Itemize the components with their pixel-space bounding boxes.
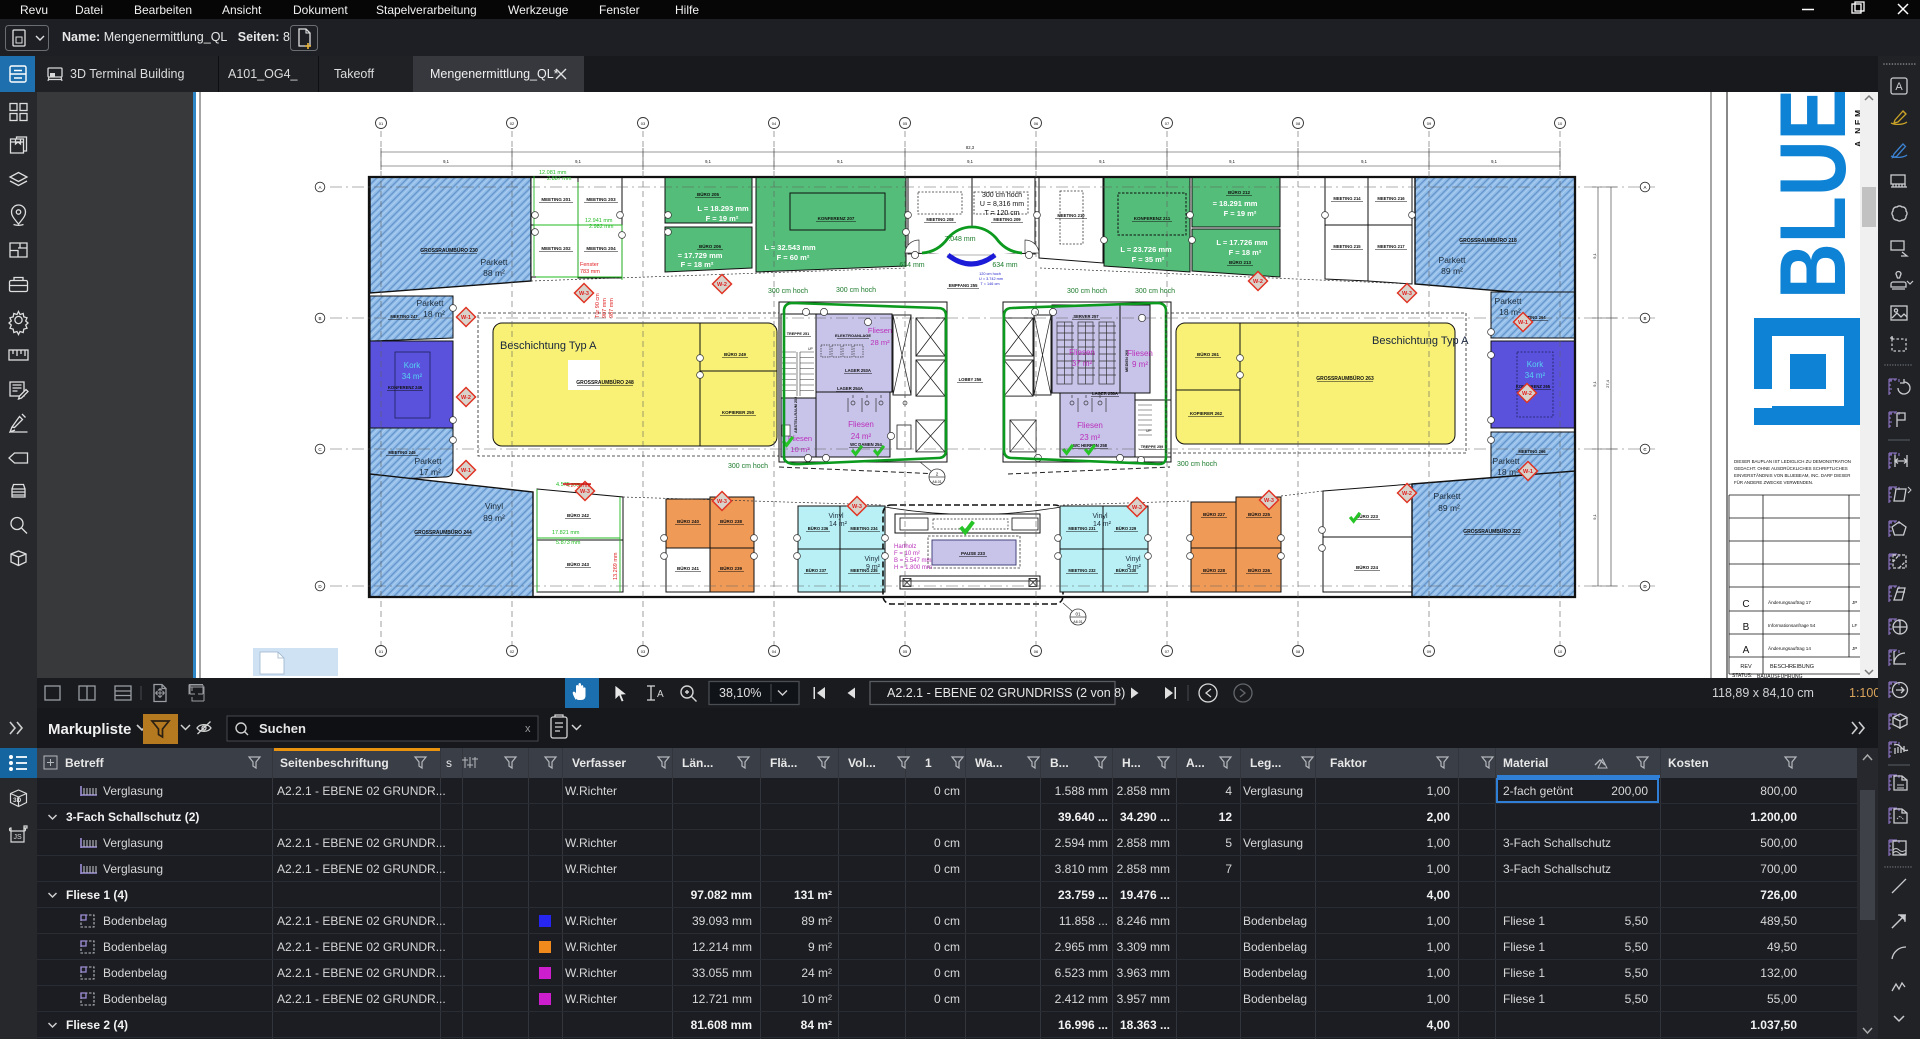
- svg-text:C: C: [1742, 599, 1749, 610]
- svg-text:W-3: W-3: [1402, 291, 1412, 297]
- svg-text:GROSSRAUMBÜRO 230: GROSSRAUMBÜRO 230: [420, 247, 478, 254]
- svg-text:U = 8,316 mm: U = 8,316 mm: [980, 201, 1024, 208]
- svg-text:MEETING 208: MEETING 208: [926, 217, 954, 222]
- svg-text:KONFERENZ 246: KONFERENZ 246: [388, 385, 423, 390]
- svg-text:Fenster: Fenster: [580, 262, 599, 268]
- svg-text:U = 3.742 mm: U = 3.742 mm: [979, 277, 1003, 281]
- svg-text:MEETING 234: MEETING 234: [850, 526, 878, 531]
- svg-text:18 m²: 18 m²: [423, 309, 445, 319]
- svg-text:LOBBY 256: LOBBY 256: [959, 377, 982, 382]
- svg-text:B: B: [1743, 622, 1750, 633]
- svg-text:Parkett: Parkett: [1439, 255, 1467, 265]
- svg-text:L = 18.293 mm: L = 18.293 mm: [697, 204, 749, 213]
- svg-text:W-1: W-1: [1523, 469, 1533, 475]
- svg-text:14 m²: 14 m²: [1093, 521, 1112, 528]
- svg-text:9 m²: 9 m²: [1132, 360, 1148, 369]
- svg-text:Markupliste: Markupliste: [48, 721, 131, 738]
- svg-text:ABSTELLRAUM 252: ABSTELLRAUM 252: [794, 397, 798, 433]
- svg-text:= 17.729 mm: = 17.729 mm: [678, 251, 723, 260]
- svg-text:37 m²: 37 m²: [1072, 359, 1093, 368]
- svg-text:GROSSRAUMBÜRO 263: GROSSRAUMBÜRO 263: [1316, 375, 1374, 382]
- svg-text:MEETING 210: MEETING 210: [1057, 213, 1085, 218]
- svg-text:300 cm hoch: 300 cm hoch: [1067, 288, 1107, 295]
- svg-text:02: 02: [510, 121, 515, 126]
- svg-text:Vinyl: Vinyl: [1125, 556, 1140, 563]
- svg-text:W-3: W-3: [717, 499, 727, 505]
- svg-text:F = 60 m²: F = 60 m²: [777, 253, 810, 262]
- svg-text:A: A: [1743, 645, 1750, 656]
- svg-text:BÜRO 225: BÜRO 225: [1248, 511, 1271, 517]
- svg-text:38,10%: 38,10%: [719, 686, 761, 700]
- svg-text:300 cm hoch: 300 cm hoch: [982, 192, 1022, 199]
- svg-text:W-2: W-2: [717, 282, 727, 288]
- svg-text:LF: LF: [1852, 623, 1858, 628]
- svg-text:88 m²: 88 m²: [483, 268, 505, 278]
- svg-text:BÜRO 240: BÜRO 240: [677, 518, 700, 524]
- svg-text:MEETING 201: MEETING 201: [541, 197, 571, 202]
- svg-text:9 m²: 9 m²: [866, 564, 881, 571]
- svg-text:PAUSE 233: PAUSE 233: [961, 551, 985, 556]
- svg-text:09: 09: [1427, 121, 1432, 126]
- svg-text:BÜRO 236: BÜRO 236: [808, 526, 829, 531]
- svg-text:Parkett: Parkett: [417, 298, 445, 308]
- svg-text:9,1: 9,1: [1491, 159, 1497, 164]
- svg-text:Vinyl: Vinyl: [828, 513, 843, 520]
- svg-text:34 m²: 34 m²: [402, 372, 423, 381]
- svg-text:Kork: Kork: [404, 361, 421, 370]
- svg-text:LAGER 254A: LAGER 254A: [837, 386, 863, 391]
- svg-text:KOPIERER 250: KOPIERER 250: [722, 410, 755, 415]
- svg-text:L = 32.543 mm: L = 32.543 mm: [764, 243, 816, 252]
- svg-text:300 cm hoch: 300 cm hoch: [836, 287, 876, 294]
- svg-text:A6.01: A6.01: [1073, 620, 1082, 624]
- svg-text:Fliesen: Fliesen: [848, 420, 874, 429]
- svg-text:MEETING 214: MEETING 214: [1333, 196, 1361, 201]
- svg-text:L = 23.726 mm: L = 23.726 mm: [1120, 245, 1172, 254]
- svg-text:Fliesen: Fliesen: [868, 326, 892, 335]
- svg-text:A2.2.1 - EBENE 02 GRUNDRISS (2: A2.2.1 - EBENE 02 GRUNDRISS (2 von 8): [887, 686, 1125, 700]
- svg-text:10 m²: 10 m²: [790, 445, 810, 454]
- svg-text:W-3: W-3: [580, 489, 590, 495]
- svg-text:A: A: [657, 689, 664, 700]
- svg-text:BESCHREIBUNG: BESCHREIBUNG: [1770, 664, 1814, 670]
- svg-text:907 mm: 907 mm: [602, 298, 608, 318]
- svg-text:W-1: W-1: [461, 315, 471, 321]
- svg-text:H = 1.800 mm: H = 1.800 mm: [894, 565, 932, 571]
- svg-text:3D: 3D: [13, 797, 22, 804]
- svg-text:ELEKTROANLAGE: ELEKTROANLAGE: [835, 333, 871, 338]
- svg-text:KONFERENZ 211: KONFERENZ 211: [1134, 216, 1171, 221]
- svg-text:JP: JP: [1852, 600, 1857, 605]
- svg-text:17 m²: 17 m²: [419, 467, 441, 477]
- svg-text:Tür 90 cm: Tür 90 cm: [595, 293, 601, 318]
- svg-text:REV: REV: [1740, 664, 1752, 670]
- svg-text:F = 10 m²: F = 10 m²: [894, 551, 920, 557]
- svg-text:MEETING 202: MEETING 202: [541, 246, 571, 251]
- svg-text:WC DAMEN 254: WC DAMEN 254: [850, 442, 882, 447]
- svg-text:Kork: Kork: [1527, 360, 1544, 369]
- svg-text:MEETING 217: MEETING 217: [1377, 244, 1405, 249]
- svg-text:MEETING 232: MEETING 232: [1068, 568, 1096, 573]
- svg-text:W-2: W-2: [1402, 491, 1412, 497]
- svg-text:A: A: [1895, 81, 1903, 93]
- svg-text:300 cm hoch: 300 cm hoch: [728, 463, 768, 470]
- svg-text:MEETING 204: MEETING 204: [586, 246, 616, 251]
- svg-text:06: 06: [1034, 121, 1039, 126]
- svg-text:DIESER BAUPLAN IST LEDIGLICH Z: DIESER BAUPLAN IST LEDIGLICH ZU DEMONSTR…: [1734, 459, 1851, 464]
- svg-text:WC HERREN 258: WC HERREN 258: [1073, 443, 1108, 448]
- svg-text:Suchen: Suchen: [259, 721, 306, 736]
- svg-text:89 m²: 89 m²: [1441, 266, 1463, 276]
- svg-text:Fliesen: Fliesen: [1127, 349, 1153, 358]
- svg-text:9,1: 9,1: [1592, 380, 1597, 386]
- svg-text:27,4: 27,4: [1605, 379, 1610, 388]
- svg-text:300 cm hoch: 300 cm hoch: [1135, 288, 1175, 295]
- svg-text:783 mm: 783 mm: [580, 269, 600, 275]
- svg-text:7.048 mm: 7.048 mm: [944, 236, 975, 243]
- svg-text:BÜRO 212: BÜRO 212: [1228, 189, 1251, 195]
- svg-text:GROSSRAUMBÜRO 218: GROSSRAUMBÜRO 218: [1459, 237, 1517, 244]
- svg-text:TREPPE 259: TREPPE 259: [1141, 445, 1164, 449]
- svg-text:01: 01: [379, 121, 384, 126]
- svg-text:9,1: 9,1: [1592, 252, 1597, 258]
- svg-text:04: 04: [772, 649, 777, 654]
- svg-text:Parkett: Parkett: [1495, 296, 1523, 306]
- svg-text:EINVERSTÄNDNIS VON BLUEBEAM, I: EINVERSTÄNDNIS VON BLUEBEAM, INC. DARF D…: [1734, 473, 1850, 478]
- svg-text:F = 35 m²: F = 35 m²: [1132, 255, 1165, 264]
- svg-text:F = 18 m²: F = 18 m²: [681, 260, 714, 269]
- svg-text:BÜRO 243: BÜRO 243: [567, 561, 590, 567]
- svg-text:300 cm hoch: 300 cm hoch: [768, 288, 808, 295]
- svg-text:08: 08: [1296, 121, 1301, 126]
- svg-text:MEETING 216: MEETING 216: [1377, 196, 1405, 201]
- svg-text:634 mm: 634 mm: [992, 262, 1017, 269]
- svg-text:9,1: 9,1: [575, 159, 581, 164]
- svg-text:23 m²: 23 m²: [1080, 433, 1101, 442]
- svg-text:BÜRO 238: BÜRO 238: [720, 518, 743, 524]
- svg-text:BÜRO 229: BÜRO 229: [1116, 526, 1137, 531]
- svg-text:Beschichtung Typ A: Beschichtung Typ A: [500, 340, 597, 352]
- svg-text:Änderungsauftrag 14: Änderungsauftrag 14: [1768, 645, 1811, 651]
- svg-text:KONFERENZ 265: KONFERENZ 265: [1516, 384, 1551, 389]
- svg-text:x: x: [525, 723, 531, 735]
- svg-text:BÜRO 205: BÜRO 205: [697, 191, 720, 197]
- svg-text:Vinyl: Vinyl: [485, 501, 503, 511]
- svg-text:10: 10: [1558, 649, 1563, 654]
- svg-text:14 m²: 14 m²: [829, 521, 848, 528]
- svg-text:W-3: W-3: [1132, 505, 1142, 511]
- svg-text:BÜRO 249: BÜRO 249: [724, 351, 747, 357]
- svg-text:Änderungsauftrag 17: Änderungsauftrag 17: [1768, 599, 1811, 605]
- svg-text:987 mm: 987 mm: [609, 298, 615, 318]
- svg-text:W-3: W-3: [579, 291, 589, 297]
- svg-text:BÜRO 226: BÜRO 226: [1248, 567, 1271, 573]
- svg-text:24 m²: 24 m²: [851, 432, 872, 441]
- svg-text:W-1: W-1: [1518, 320, 1528, 326]
- svg-text:GROSSRAUMBÜRO 222: GROSSRAUMBÜRO 222: [1463, 528, 1521, 535]
- svg-text:9,1: 9,1: [1361, 159, 1367, 164]
- svg-text:08: 08: [1296, 649, 1301, 654]
- svg-text:BLUE: BLUE: [1760, 92, 1860, 299]
- svg-text:A: A: [318, 185, 321, 190]
- svg-text:17.821 mm: 17.821 mm: [552, 530, 580, 536]
- svg-text:09: 09: [1427, 649, 1432, 654]
- svg-text:A6.01: A6.01: [932, 480, 941, 484]
- svg-text:MEETING 209: MEETING 209: [993, 217, 1021, 222]
- svg-text:05: 05: [903, 121, 908, 126]
- svg-text:01: 01: [379, 649, 384, 654]
- svg-text:UP: UP: [808, 347, 814, 351]
- svg-text:02: 02: [510, 649, 515, 654]
- svg-text:JP: JP: [1852, 646, 1857, 651]
- svg-text:BÜRO 241: BÜRO 241: [677, 565, 700, 571]
- svg-text:9,1: 9,1: [967, 159, 973, 164]
- svg-text:FÜR ANDERE ZWECKE VERWENDEN.: FÜR ANDERE ZWECKE VERWENDEN.: [1734, 480, 1813, 485]
- svg-text:9,1: 9,1: [837, 159, 843, 164]
- svg-text:89 m²: 89 m²: [483, 513, 505, 523]
- svg-text:BÜRO 213: BÜRO 213: [1229, 259, 1252, 265]
- svg-text:Informationsanfrage 54: Informationsanfrage 54: [1768, 623, 1816, 628]
- svg-text:Parkett: Parkett: [1434, 491, 1462, 501]
- svg-text:BÜRO 227: BÜRO 227: [1203, 511, 1226, 517]
- svg-text:82,3: 82,3: [966, 145, 975, 150]
- svg-text:07: 07: [1165, 649, 1170, 654]
- svg-text:9 m²: 9 m²: [1127, 564, 1142, 571]
- svg-text:F = 18 m²: F = 18 m²: [1229, 248, 1262, 257]
- svg-text:9,1: 9,1: [705, 159, 711, 164]
- svg-text:BÜRO 237: BÜRO 237: [806, 568, 827, 573]
- svg-text:34 m²: 34 m²: [1525, 371, 1546, 380]
- svg-text:4.575 mm: 4.575 mm: [556, 482, 581, 488]
- svg-text:GROSSRAUMBÜRO 244: GROSSRAUMBÜRO 244: [414, 529, 472, 536]
- svg-text:BÜRO 224: BÜRO 224: [1356, 564, 1379, 570]
- svg-text:03: 03: [641, 649, 646, 654]
- svg-text:04: 04: [772, 121, 777, 126]
- svg-text:Parkett: Parkett: [481, 257, 509, 267]
- svg-text:KONFERENZ 207: KONFERENZ 207: [818, 216, 855, 221]
- svg-text:GEDACHT. OHNE AUSDRÜCKLICHES: GEDACHT. OHNE AUSDRÜCKLICHES SCHRIFTLICH…: [1734, 466, 1848, 471]
- svg-text:MEETING 203: MEETING 203: [586, 197, 616, 202]
- svg-text:JS: JS: [14, 834, 23, 841]
- svg-text:634 mm: 634 mm: [899, 262, 924, 269]
- svg-text:BÜRO 261: BÜRO 261: [1197, 351, 1220, 357]
- svg-text:Parkett: Parkett: [415, 456, 443, 466]
- svg-text:F = 19 m²: F = 19 m²: [706, 214, 739, 223]
- svg-text:EMPFANG 255: EMPFANG 255: [949, 283, 979, 288]
- svg-text:L = 17.726 mm: L = 17.726 mm: [1216, 238, 1268, 247]
- svg-text:9,1: 9,1: [1099, 159, 1105, 164]
- svg-text:9,1: 9,1: [1592, 513, 1597, 519]
- svg-text:300 cm hoch: 300 cm hoch: [1177, 461, 1217, 468]
- svg-text:Fliesen: Fliesen: [1069, 348, 1095, 357]
- svg-text:W-2: W-2: [1253, 279, 1263, 285]
- svg-text:MEETING 266: MEETING 266: [1518, 449, 1546, 454]
- svg-text:BÜRO 242: BÜRO 242: [567, 512, 590, 518]
- svg-text:T = 120 cm: T = 120 cm: [984, 210, 1019, 217]
- svg-text:10: 10: [1558, 121, 1563, 126]
- svg-text:GROSSRAUMBÜRO 248: GROSSRAUMBÜRO 248: [576, 379, 634, 386]
- svg-text:TREPPE 251: TREPPE 251: [787, 332, 810, 336]
- svg-text:UP: UP: [1146, 429, 1152, 433]
- svg-text:W-3: W-3: [1264, 498, 1274, 504]
- svg-text:LAGER 253A: LAGER 253A: [845, 368, 871, 373]
- svg-text:06: 06: [1034, 649, 1039, 654]
- svg-text:28 m²: 28 m²: [870, 338, 890, 347]
- svg-text:W-2: W-2: [1522, 391, 1532, 397]
- svg-text:B: B: [318, 316, 321, 321]
- svg-text:05: 05: [903, 649, 908, 654]
- svg-text:LAGER 258A: LAGER 258A: [1092, 391, 1118, 396]
- svg-text:W-3: W-3: [852, 504, 862, 510]
- svg-text:Parkett: Parkett: [1493, 456, 1521, 466]
- svg-text:Beschichtung Typ A: Beschichtung Typ A: [1372, 335, 1469, 347]
- svg-text:B = 5.547 mm: B = 5.547 mm: [894, 558, 932, 564]
- svg-text:13.269 mm: 13.269 mm: [613, 552, 619, 580]
- svg-text:W-1: W-1: [461, 468, 471, 474]
- svg-text:120 cm hoch: 120 cm hoch: [979, 272, 1001, 276]
- svg-text:1:100: 1:100: [1849, 686, 1878, 700]
- svg-text:= 18.291 mm: = 18.291 mm: [1213, 199, 1258, 208]
- svg-text:89 m²: 89 m²: [1438, 503, 1460, 513]
- svg-text:9,1: 9,1: [443, 159, 449, 164]
- svg-text:Fliesen: Fliesen: [1077, 421, 1103, 430]
- svg-text:W-2: W-2: [461, 395, 471, 401]
- svg-text:Vinyl: Vinyl: [1092, 513, 1107, 520]
- svg-text:BÜRO 239: BÜRO 239: [720, 565, 743, 571]
- svg-text:F = 19 m²: F = 19 m²: [1224, 209, 1257, 218]
- svg-text:07: 07: [1165, 121, 1170, 126]
- svg-text:T = 146 cm: T = 146 cm: [980, 282, 999, 286]
- svg-text:Vinyl: Vinyl: [864, 556, 879, 563]
- svg-text:MEETING 245: MEETING 245: [388, 450, 416, 455]
- svg-text:5.873 mm: 5.873 mm: [556, 540, 581, 546]
- svg-text:MEETING 215: MEETING 215: [1333, 244, 1361, 249]
- svg-text:01: 01: [1075, 612, 1081, 617]
- svg-text:9,1: 9,1: [1229, 159, 1235, 164]
- svg-text:KOPIERER 262: KOPIERER 262: [1190, 411, 1223, 416]
- svg-text:03: 03: [641, 121, 646, 126]
- svg-text:118,89 x 84,10 cm: 118,89 x 84,10 cm: [1712, 686, 1814, 700]
- svg-text:2.887 mm: 2.887 mm: [547, 176, 572, 182]
- svg-text:BÜRO 206: BÜRO 206: [699, 243, 722, 249]
- svg-text:A NEM: A NEM: [1853, 107, 1860, 147]
- svg-text:BÜRO 228: BÜRO 228: [1203, 567, 1226, 573]
